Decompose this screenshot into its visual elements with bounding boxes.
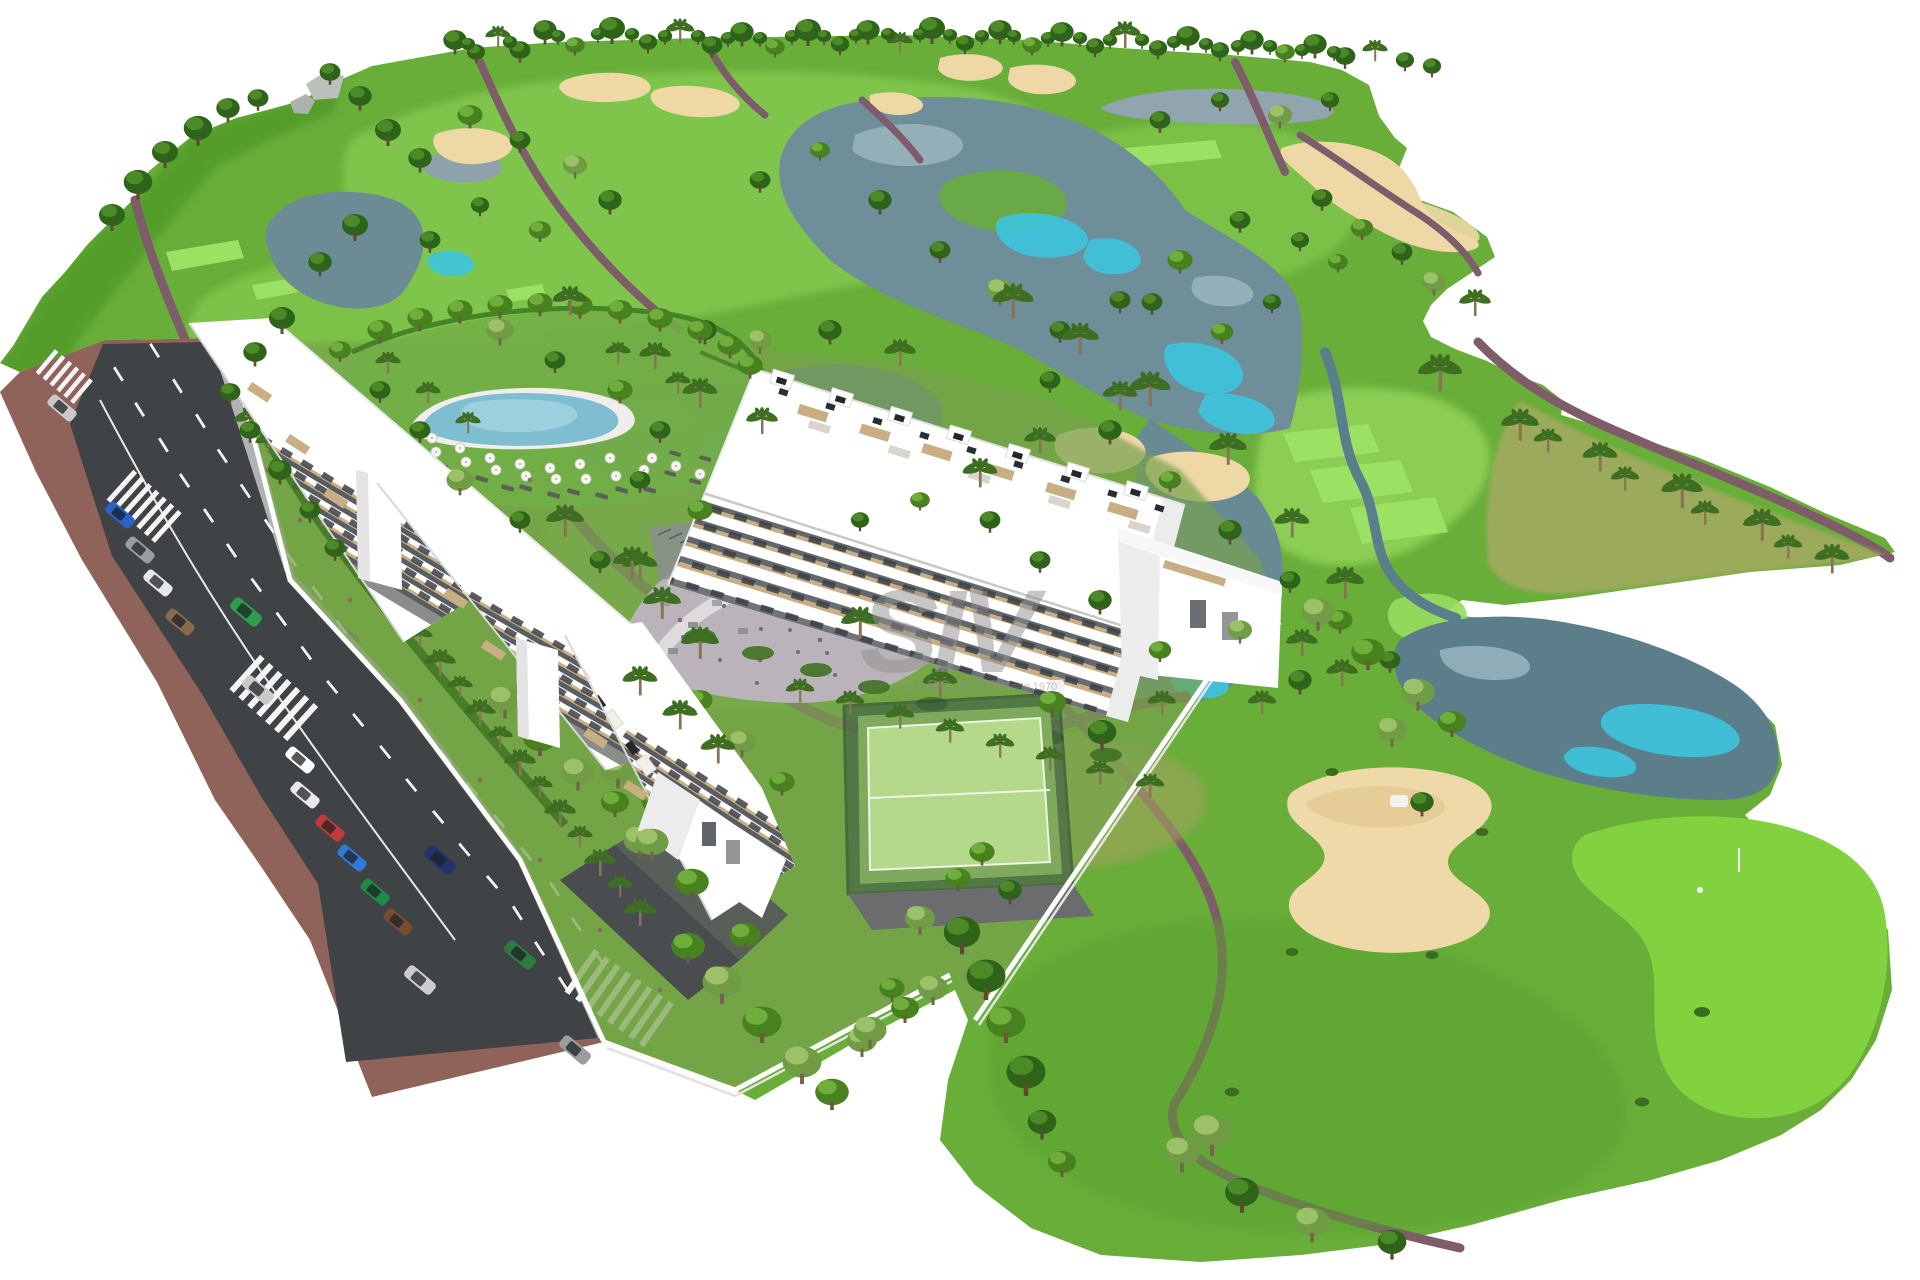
svg-text:CABO ROIG: CABO ROIG — [904, 677, 1000, 694]
svg-text:| Desde 1970: | Desde 1970 — [992, 681, 1057, 693]
